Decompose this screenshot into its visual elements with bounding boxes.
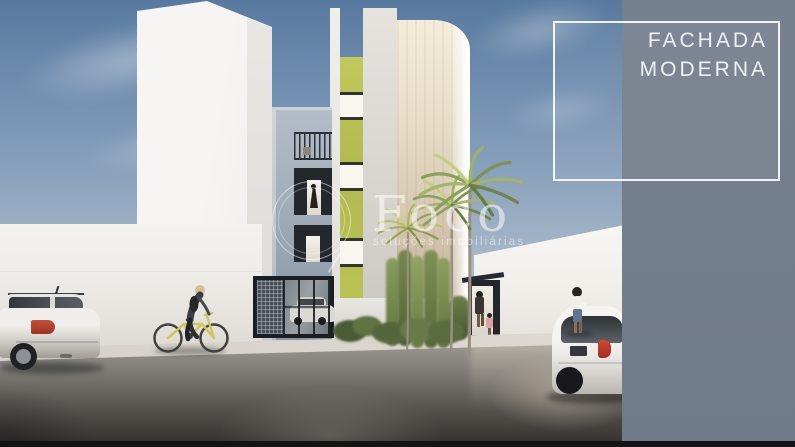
stripe-window [340,92,363,120]
car-bumper-line [558,362,626,364]
watermark-tagline: soluções imobiliárias [373,236,543,248]
wall-shadow-line [0,271,262,272]
banner-title-line2: MODERNA [568,55,768,84]
gate-mullions [283,280,330,334]
bottom-black-strip [0,441,795,447]
watermark-ring [278,187,345,254]
car-exhaust [60,354,72,358]
car-bumper-line [16,341,98,343]
architectural-render: Foco soluções imobiliárias FACHADA MODER… [0,0,795,447]
balcony-railing [294,132,332,160]
garage-gate [253,276,334,338]
car-taillight [31,320,55,334]
pedestrian-leg [574,322,577,333]
car-taillight [598,340,611,358]
banner-title-line1: FACHADA [568,26,768,55]
car-wheel-rim [16,349,31,364]
gate-mesh-panel [257,280,283,334]
pedestrian-leg [579,321,582,333]
cyclist-on-yellow-bike [150,278,235,356]
wing-parapet [272,107,332,110]
palm-trees [378,138,523,360]
stripe-window [340,162,363,191]
banner-title: FACHADA MODERNA [568,26,768,84]
white-car-rear-window [561,316,623,343]
car-wheel [556,367,583,394]
watermark-brand: Foco [372,189,532,239]
balcony-planter [303,147,311,155]
car-license-plate [570,346,587,356]
